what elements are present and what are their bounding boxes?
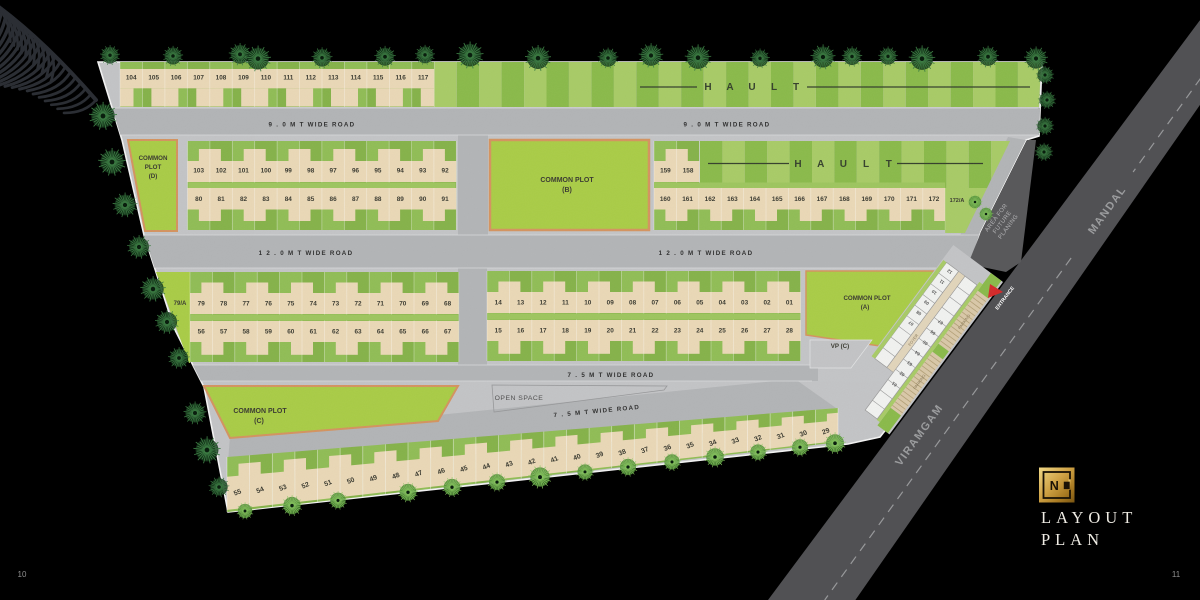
svg-text:LAYOUT: LAYOUT — [1041, 508, 1137, 527]
svg-text:10: 10 — [18, 570, 27, 579]
svg-text:PLAN: PLAN — [1041, 530, 1104, 549]
svg-text:N: N — [1050, 479, 1059, 493]
svg-text:11: 11 — [1172, 570, 1181, 579]
